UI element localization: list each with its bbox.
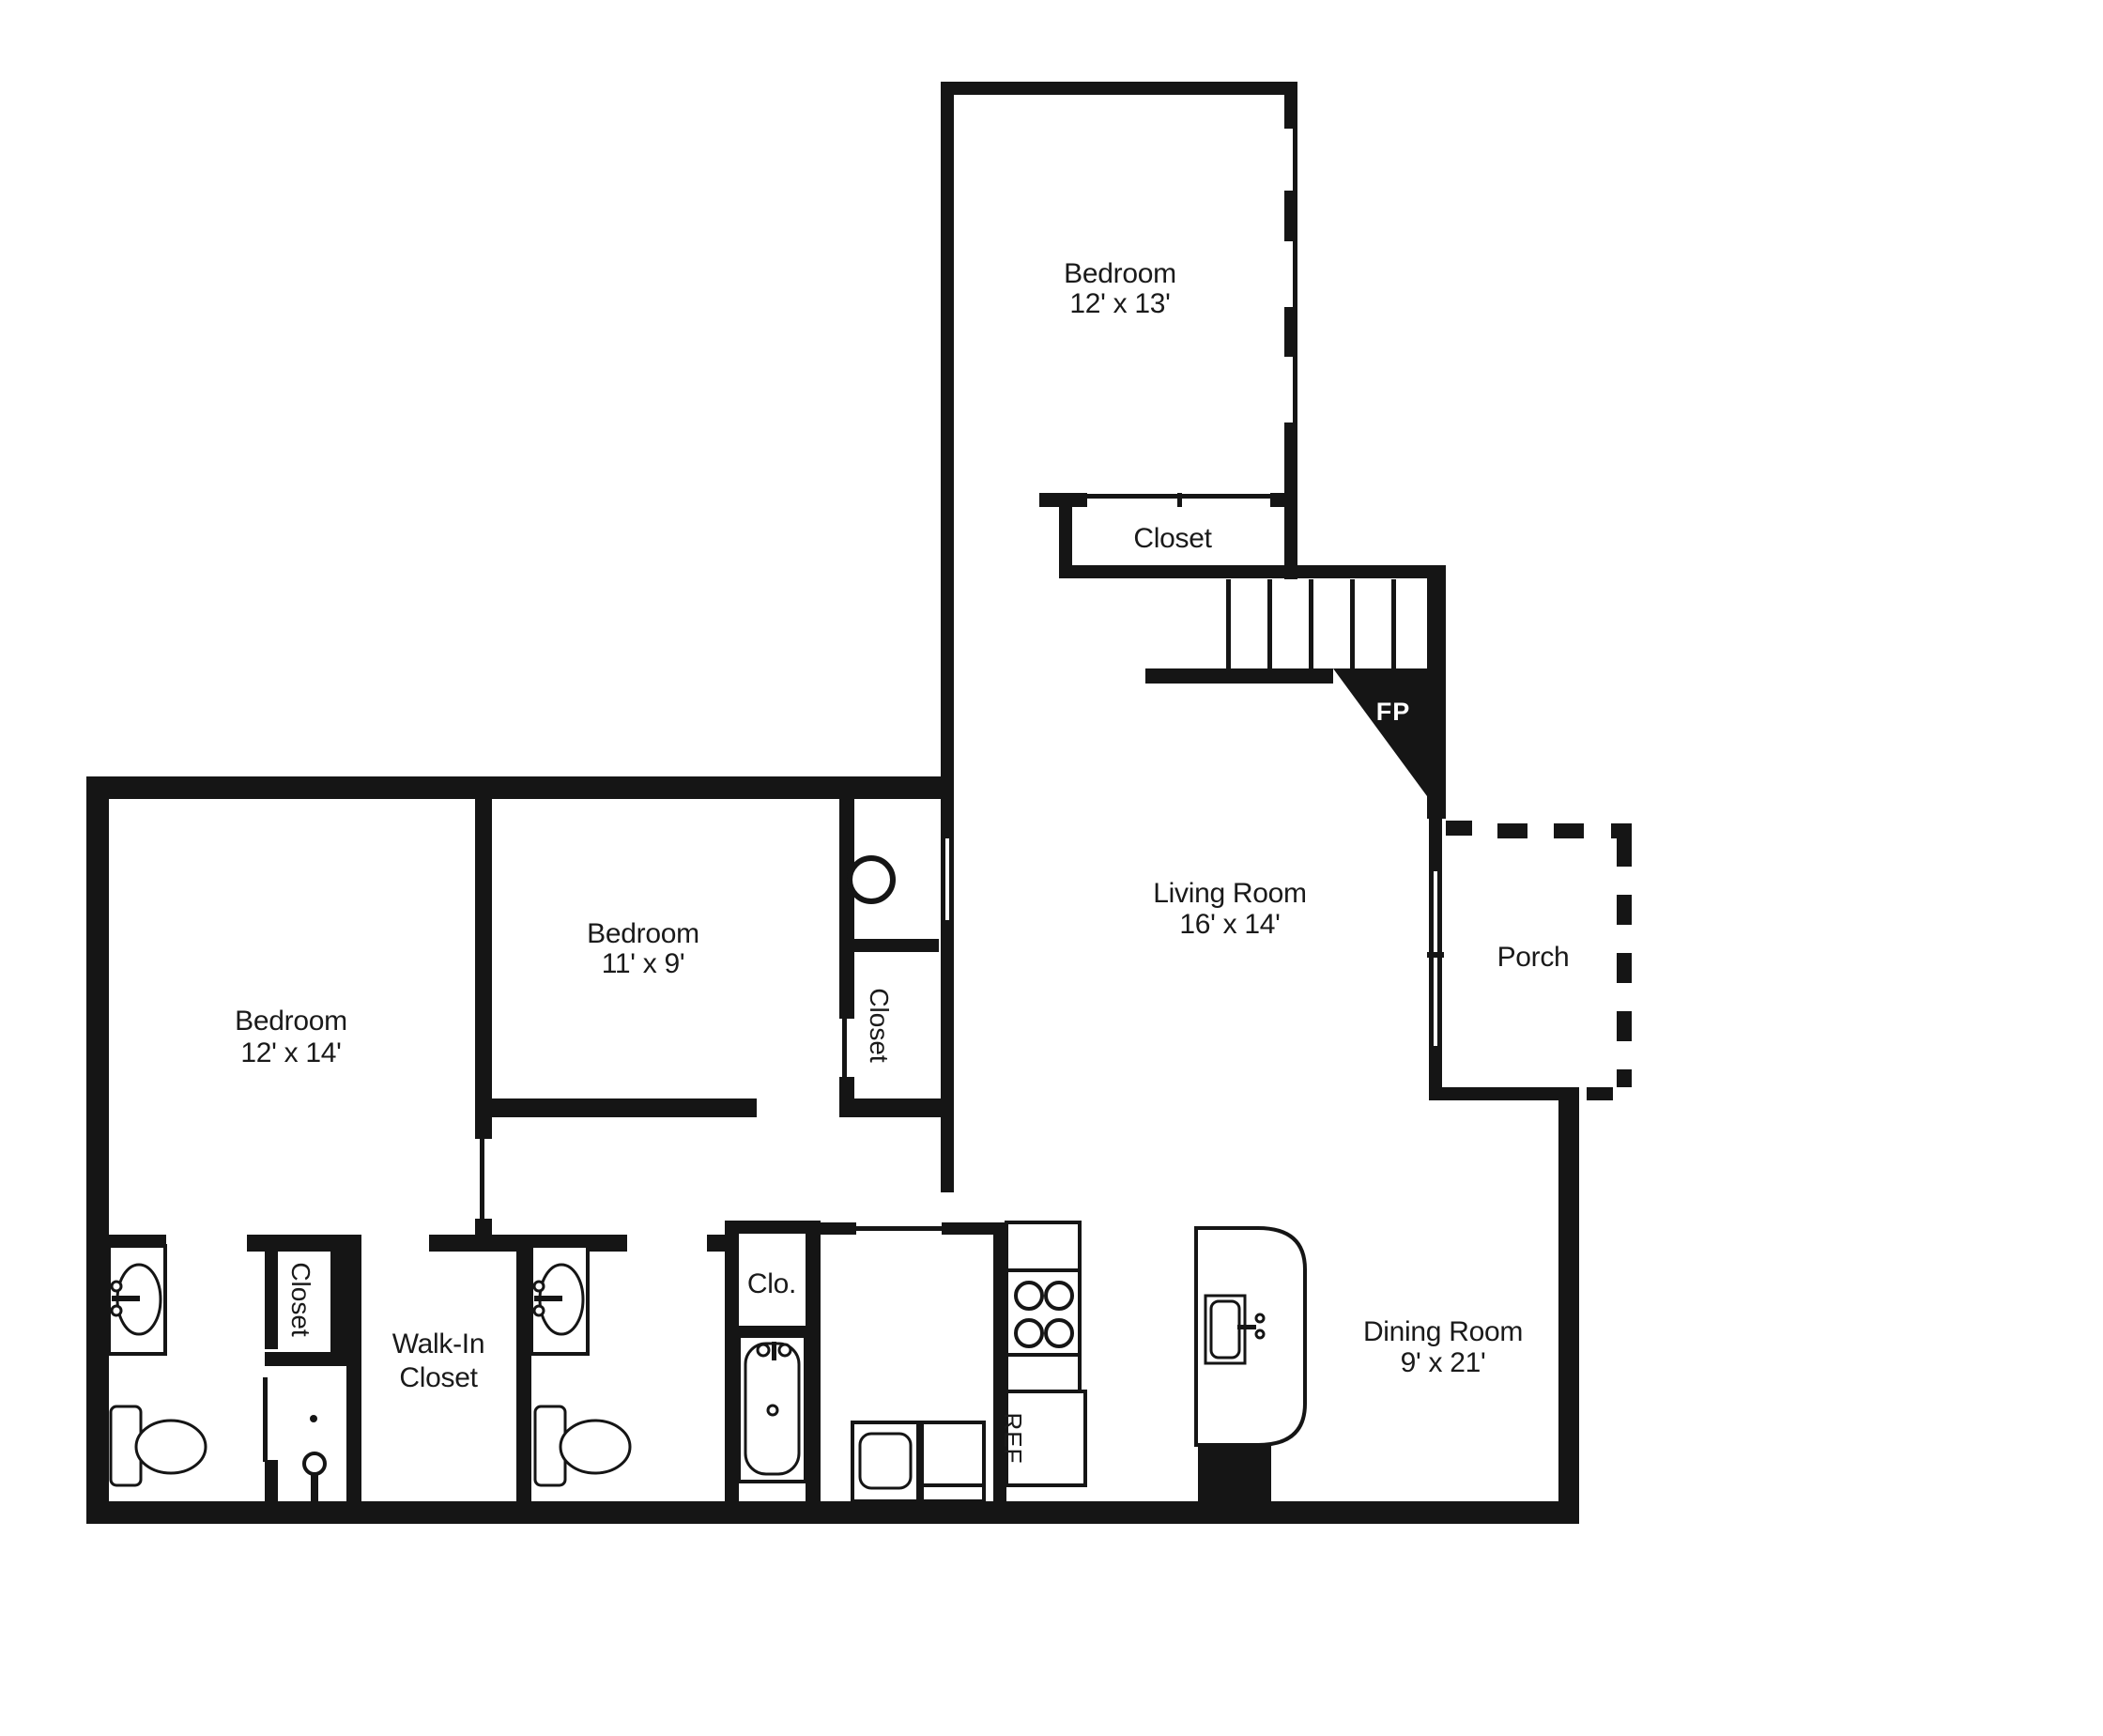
refrigerator-label: REF: [999, 1413, 1027, 1465]
bathroom2-sink: [531, 1246, 588, 1354]
living-room-dims: 16' x 14': [1179, 909, 1280, 940]
fireplace-label: FP: [1376, 698, 1411, 726]
island-support-pillar: [1198, 1445, 1271, 1501]
walkin-closet-label-1: Walk-In: [392, 1329, 484, 1360]
shower-stall: [304, 1415, 325, 1501]
washer-dryer: [852, 1422, 984, 1501]
living-room-label: Living Room: [1153, 878, 1306, 909]
water-heater-icon: [850, 858, 893, 901]
hall-closet-label: Closet: [865, 988, 894, 1063]
room-labels: Bedroom 12' x 13' Closet Living Room 16'…: [235, 258, 1569, 1393]
porch-label: Porch: [1497, 942, 1570, 973]
bathtub: [739, 1336, 806, 1482]
kitchen-island: [1196, 1228, 1305, 1501]
bathroom2-toilet: [535, 1406, 630, 1485]
bedroom-upper-dims: 12' x 13': [1069, 288, 1170, 319]
bedroom-upper-label: Bedroom: [1064, 258, 1176, 289]
staircase: [1226, 579, 1396, 668]
bedroom-master-dims: 12' x 14': [240, 1037, 341, 1068]
clo-label: Clo.: [747, 1268, 796, 1299]
bedroom-middle-label: Bedroom: [587, 918, 699, 949]
floor-plan-page: FP: [0, 0, 2103, 1736]
fireplace: FP: [1333, 668, 1427, 796]
sliding-glass-door: [1427, 871, 1444, 1046]
dining-room-dims: 9' x 21': [1401, 1347, 1486, 1378]
upper-closet-label: Closet: [1133, 523, 1212, 554]
stove-icon: [1006, 1270, 1080, 1355]
bath-closet-label: Closet: [286, 1262, 315, 1337]
dining-room-label: Dining Room: [1363, 1316, 1523, 1347]
bedroom-master-label: Bedroom: [235, 1006, 347, 1037]
bathroom1-sink: [109, 1246, 165, 1354]
floor-plan-drawing: FP: [0, 0, 2103, 1736]
bedroom-middle-dims: 11' x 9': [602, 948, 685, 979]
bathroom1-toilet: [111, 1406, 206, 1485]
refrigerator-icon: REF: [999, 1391, 1085, 1485]
walkin-closet-label-2: Closet: [399, 1362, 478, 1393]
